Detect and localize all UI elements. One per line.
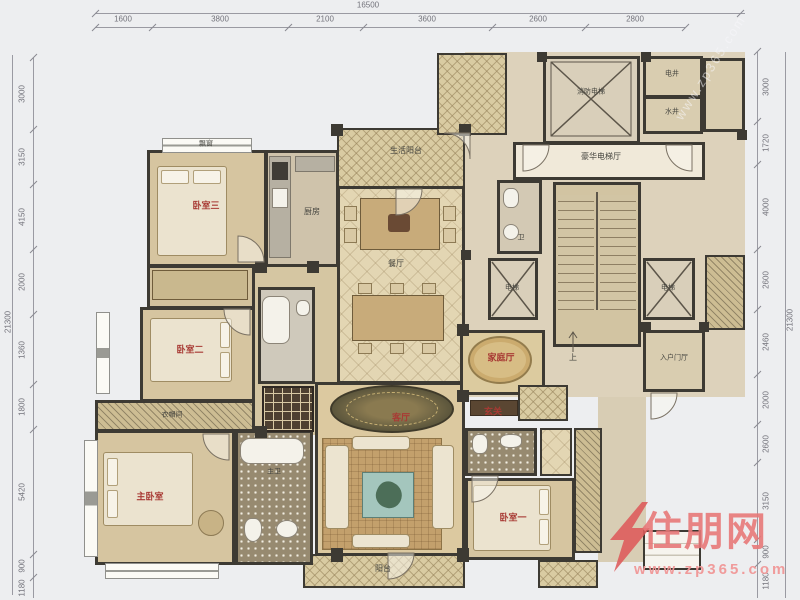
dim-right-seg: 1720 — [762, 134, 771, 152]
pillar — [641, 52, 651, 62]
label-stairs-up: 上 — [569, 354, 577, 362]
label-entry-hall: 入户门厅 — [660, 355, 688, 362]
bay-window-master-left — [84, 440, 98, 557]
dim-right-seg: 2460 — [762, 333, 771, 351]
dim-right-total: 21300 — [786, 309, 795, 331]
dim-right-seg: 3000 — [762, 78, 771, 96]
pillar — [699, 322, 709, 332]
pillar — [255, 261, 267, 273]
dim-left-seg: 4150 — [18, 208, 27, 226]
label-master-bedroom: 主卧室 — [136, 493, 163, 502]
label-elevator-hall: 豪华电梯厅 — [581, 153, 621, 161]
room-entry-balcony — [437, 53, 507, 135]
label-bay-window: 飘窗 — [199, 141, 213, 148]
stove — [272, 162, 288, 180]
bathtub — [262, 296, 290, 344]
dim-right-seg: 2000 — [762, 391, 771, 409]
room-elevator-hall — [513, 142, 705, 180]
chair — [358, 283, 372, 294]
dim-top-seg: 2800 — [626, 15, 644, 24]
label-family-hall: 家庭厅 — [487, 354, 514, 363]
chair — [422, 283, 436, 294]
toilet — [244, 518, 262, 542]
sofa — [325, 445, 349, 529]
label-elevator-2: 电梯 — [661, 285, 675, 292]
pillow — [220, 322, 230, 348]
dresser — [152, 270, 248, 300]
dim-top-seg: 3600 — [418, 15, 436, 24]
room-fire-elevator — [543, 56, 640, 144]
toilet — [472, 434, 488, 454]
toilet — [296, 300, 310, 316]
dim-right-seg: 4000 — [762, 198, 771, 216]
chair — [443, 228, 456, 243]
pillar — [459, 124, 471, 136]
label-dining-room: 餐厅 — [388, 260, 404, 268]
chair — [390, 343, 404, 354]
label-living-room: 客厅 — [392, 414, 410, 423]
pillar — [461, 250, 471, 260]
pillar — [255, 426, 267, 438]
cabinet-grid — [262, 386, 314, 432]
long-table — [352, 295, 444, 341]
chair — [390, 283, 404, 294]
bay-window-master-bottom — [105, 563, 219, 579]
pillow — [107, 490, 118, 518]
pillar — [331, 548, 343, 562]
label-foyer: 玄关 — [484, 408, 502, 417]
dim-top-seg: 2100 — [316, 15, 334, 24]
room-life-balcony — [337, 128, 465, 188]
dim-right-seg: 2600 — [762, 271, 771, 289]
kitchen-counter — [295, 156, 335, 172]
room-balcony-small — [538, 560, 598, 588]
label-balcony: 阳台 — [375, 565, 391, 573]
kitchen-sink — [272, 188, 288, 208]
pillow — [539, 489, 549, 515]
watermark-site: www.zp365.com — [634, 561, 788, 578]
floor-plan-photo: 16500 1600 3800 2100 3600 2600 2800 2130… — [0, 0, 800, 600]
label-shaft-electric: 电井 — [665, 71, 679, 78]
ruler-left-segment-line — [33, 58, 34, 598]
stair-flight — [600, 195, 636, 310]
label-bath: 卫 — [518, 235, 525, 242]
dim-left-seg: 2000 — [18, 273, 27, 291]
stair-flight — [558, 195, 594, 310]
dim-left-seg: 3000 — [18, 85, 27, 103]
sofa — [432, 445, 454, 529]
pillow — [107, 458, 118, 486]
label-elevator-1: 电梯 — [505, 285, 519, 292]
ruler-top-segment-line — [95, 27, 685, 28]
pillow — [193, 170, 221, 184]
dim-top-total: 16500 — [357, 1, 379, 10]
toilet — [503, 188, 519, 208]
label-life-balcony: 生活阳台 — [390, 147, 422, 155]
chair — [344, 228, 357, 243]
pillow — [539, 519, 549, 545]
sofa-bench — [352, 436, 410, 450]
watermark-brand: 住朋网 — [642, 508, 782, 556]
dim-top-seg: 2600 — [529, 15, 547, 24]
room-wardrobe-strip — [574, 428, 602, 553]
chair — [358, 343, 372, 354]
room-ac-platform — [705, 255, 745, 330]
chair — [344, 206, 357, 221]
pillar — [737, 130, 747, 140]
label-kitchen: 厨房 — [304, 208, 320, 216]
dim-top-seg: 1600 — [114, 15, 132, 24]
table-centerpiece — [388, 214, 410, 232]
label-master-bath: 主卫 — [267, 469, 281, 476]
pillar — [537, 52, 547, 62]
bay-window-left — [96, 312, 110, 394]
chair — [422, 343, 436, 354]
label-cloakroom: 衣帽间 — [162, 412, 183, 419]
dim-top-seg: 3800 — [211, 15, 229, 24]
dim-left-seg: 3150 — [18, 148, 27, 166]
room-entry-tile — [518, 385, 568, 421]
pillar — [641, 322, 651, 332]
pillar — [457, 548, 469, 562]
round-rug — [198, 510, 224, 536]
label-bedroom3: 卧室三 — [192, 202, 219, 211]
pillar — [331, 124, 343, 136]
chair — [443, 206, 456, 221]
basin — [276, 520, 298, 538]
label-bedroom1: 卧室一 — [499, 514, 526, 523]
dim-left-total: 21300 — [4, 311, 13, 333]
dim-left-seg: 1180 — [18, 579, 27, 596]
pillow — [220, 352, 230, 378]
dim-left-seg: 5420 — [18, 483, 27, 501]
pillar — [457, 324, 469, 336]
label-bedroom2: 卧室二 — [176, 346, 203, 355]
label-fire-elevator: 消防电梯 — [577, 89, 605, 96]
dim-left-seg: 1800 — [18, 398, 27, 416]
pillar — [307, 261, 319, 273]
basin — [500, 434, 522, 448]
dim-left-seg: 900 — [18, 559, 27, 572]
room-shoe-cabinet — [540, 428, 572, 476]
dim-left-seg: 1360 — [18, 341, 27, 359]
corridor-floor — [598, 397, 646, 562]
pillar — [457, 390, 469, 402]
sofa-bench — [352, 534, 410, 548]
pillow — [161, 170, 189, 184]
dim-right-seg: 2600 — [762, 435, 771, 453]
bathtub — [240, 438, 304, 464]
